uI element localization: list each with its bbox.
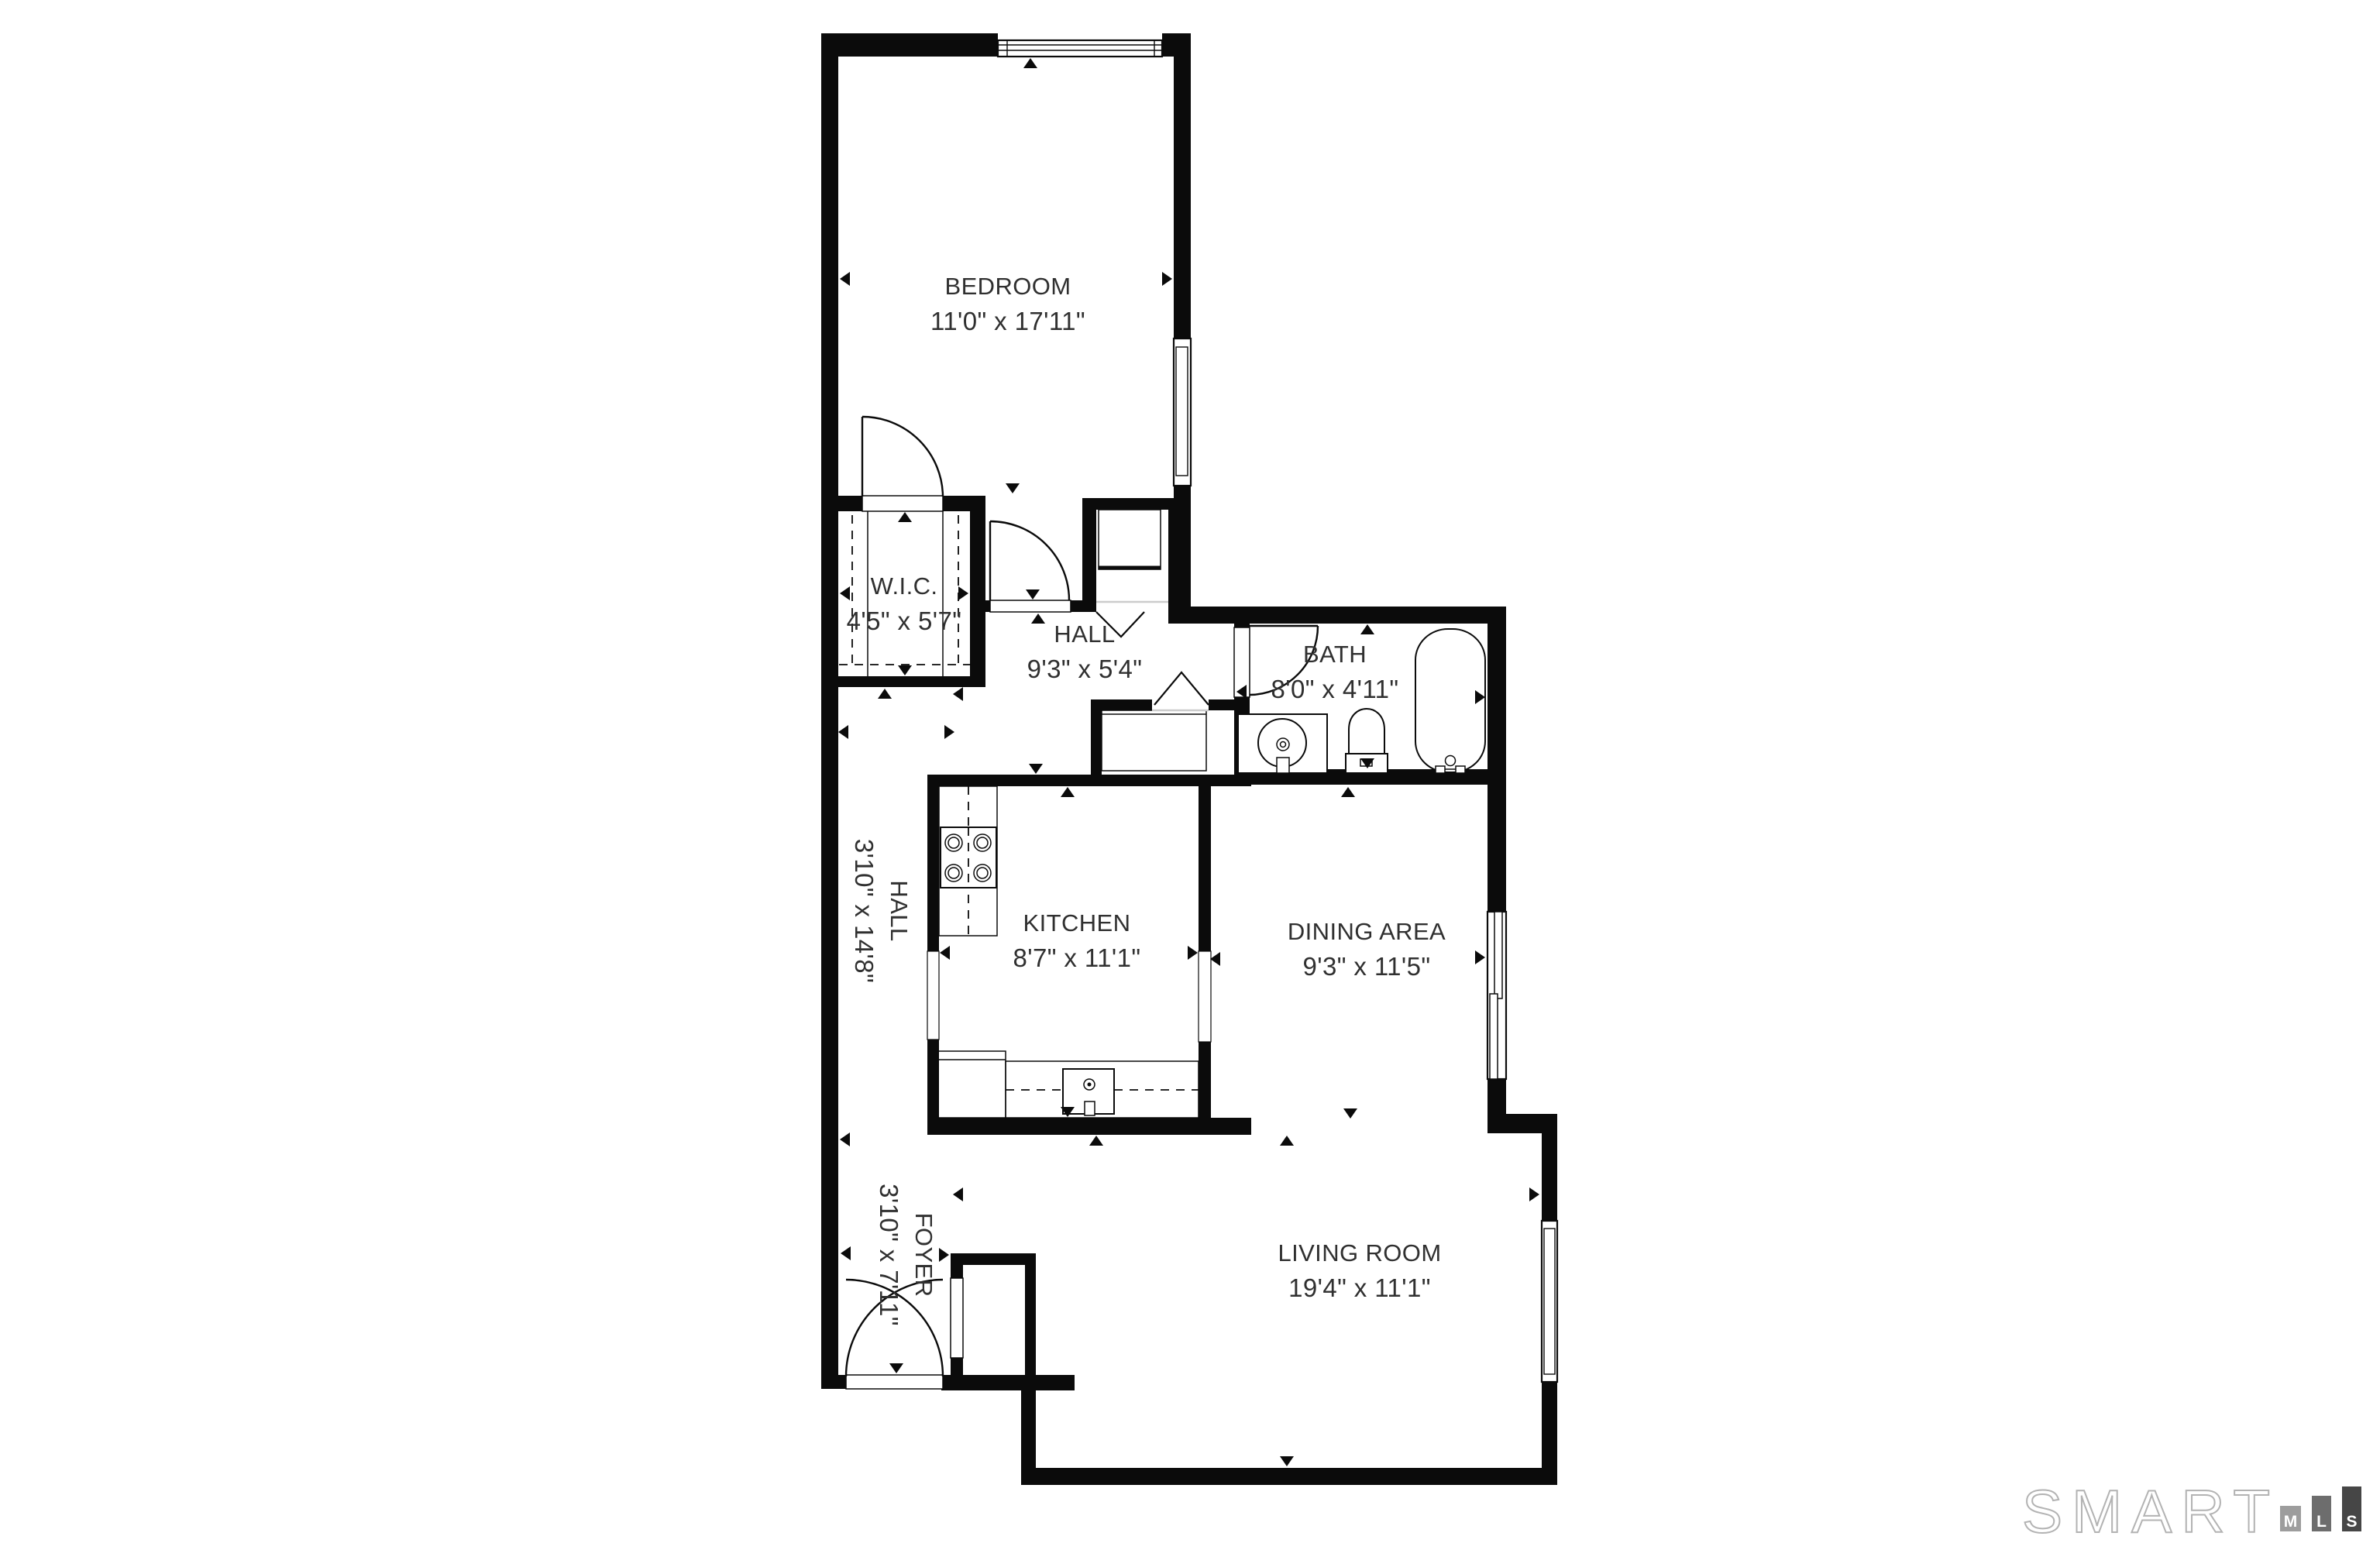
bathtub-icon xyxy=(1415,629,1485,773)
stove-icon xyxy=(941,827,996,888)
kitchen-dining-opening xyxy=(1199,951,1211,1042)
room-name: KITCHEN xyxy=(1013,906,1141,940)
room-name: HALL xyxy=(1027,617,1143,651)
room-name: W.I.C. xyxy=(847,569,962,603)
sliding-door-dining xyxy=(1487,912,1506,1079)
room-label-bath: BATH 8'0" x 4'11" xyxy=(1271,637,1399,706)
room-dimensions: 3'10" x 14'8" xyxy=(847,839,882,983)
room-label-living-room: LIVING ROOM 19'4" x 11'1" xyxy=(1278,1236,1441,1305)
room-label-kitchen: KITCHEN 8'7" x 11'1" xyxy=(1013,906,1141,975)
room-label-wic: W.I.C. 4'5" x 5'7" xyxy=(847,569,962,638)
room-dimensions: 8'0" x 4'11" xyxy=(1271,672,1399,706)
room-label-dining-area: DINING AREA 9'3" x 11'5" xyxy=(1288,914,1446,984)
floor-plan-page: BEDROOM 11'0" x 17'11" W.I.C. 4'5" x 5'7… xyxy=(0,0,2380,1550)
room-label-hall-corridor: HALL 3'10" x 14'8" xyxy=(847,839,917,983)
room-dimensions: 11'0" x 17'11" xyxy=(930,304,1085,339)
window-living-room xyxy=(1542,1221,1557,1382)
logo-letter-m: M xyxy=(2284,1513,2298,1531)
room-name: HALL xyxy=(882,839,917,983)
room-dimensions: 3'10" x 7'11" xyxy=(872,1184,906,1326)
bathroom-sink-icon xyxy=(1238,714,1327,773)
window-bedroom-right xyxy=(1174,339,1191,486)
room-dimensions: 4'5" x 5'7" xyxy=(847,603,962,638)
window-bedroom-top xyxy=(998,40,1162,57)
room-name: LIVING ROOM xyxy=(1278,1236,1441,1270)
room-dimensions: 19'4" x 11'1" xyxy=(1278,1270,1441,1305)
logo-letter-s: S xyxy=(2346,1513,2357,1531)
room-label-hall: HALL 9'3" x 5'4" xyxy=(1027,617,1143,686)
door-bedroom-hall xyxy=(990,521,1071,612)
logo-letter-l: L xyxy=(2316,1513,2327,1531)
room-label-bedroom: BEDROOM 11'0" x 17'11" xyxy=(930,269,1085,339)
room-name: BATH xyxy=(1271,637,1399,672)
floor-plan-drawing xyxy=(0,0,2380,1550)
kitchen-hall-opening xyxy=(927,951,939,1040)
accordion-door-chevron xyxy=(1154,672,1209,705)
hall-closet-lower xyxy=(1102,672,1209,771)
logo-brand-text: SMART xyxy=(2022,1478,2270,1545)
room-name: FOYER xyxy=(906,1184,941,1326)
door-wic xyxy=(862,417,943,511)
room-label-foyer: FOYER 3'10" x 7'11" xyxy=(872,1184,941,1326)
room-dimensions: 9'3" x 5'4" xyxy=(1027,651,1143,686)
room-name: BEDROOM xyxy=(930,269,1085,304)
kitchen-cabinet xyxy=(937,1051,1006,1118)
closet-door-foyer xyxy=(951,1278,963,1358)
room-name: DINING AREA xyxy=(1288,914,1446,949)
closet-symbols xyxy=(839,510,1209,771)
room-dimensions: 9'3" x 11'5" xyxy=(1288,949,1446,984)
room-dimensions: 8'7" x 11'1" xyxy=(1013,940,1141,975)
smartmls-logo: SMART M L S xyxy=(2005,1478,2377,1549)
